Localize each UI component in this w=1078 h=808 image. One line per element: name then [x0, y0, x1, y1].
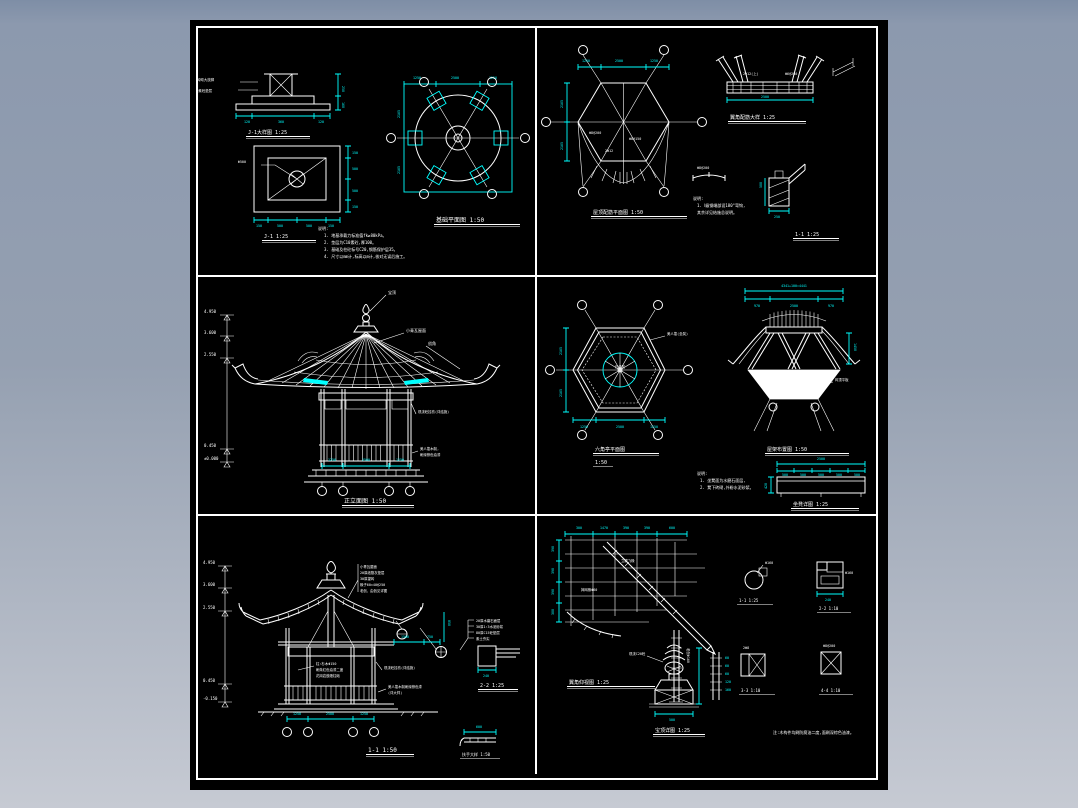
dim-label: 1250	[293, 712, 301, 716]
plan-roof-drawing: 石桌凳 美人靠(坐凳) 1250 2500 1250 2165 2165 六角亭…	[537, 277, 876, 514]
drawing-title: 宝顶详图 1:25	[655, 727, 690, 734]
note-line: 1. 坐凳面为水磨石面层,	[700, 477, 746, 483]
callout-label: 现浇砼挂枋(详结施)	[384, 665, 415, 670]
layer-label: 老戗、由戗见详图	[360, 588, 388, 593]
dim-label: 2500	[615, 59, 623, 63]
dim-label: 1470	[600, 526, 608, 530]
grid-axis-row: 1250 2500 1250	[318, 458, 415, 496]
dim-label: 60	[725, 656, 729, 660]
panel-details: 300 1470 390 390 600 390 390 390 300 摔网椽…	[537, 516, 876, 774]
drawing-title: 扶手大样 1:50	[462, 751, 491, 757]
drawing-title: 2-2 1:25	[480, 683, 504, 689]
section-1-1-detail: Φ160 1-1 1:25	[737, 561, 773, 605]
dim-label: 2500	[326, 712, 334, 716]
level-label: 0.450	[203, 678, 216, 683]
dim-label: 240	[483, 674, 489, 678]
dim-label: 500	[782, 473, 788, 477]
panel-roof-rebar: Φ8@200 Φ8@150 2Φ12 1250 2500 1250 2165 2…	[537, 28, 876, 277]
note-line: 1. Ⅰ级钢端部设180°弯钩,	[697, 202, 745, 208]
page-background: 砖砌大放脚 C10素砼垫层 250 160 120 360 120 J-1大样图…	[0, 0, 1078, 808]
drawing-title: J-1大样图 1:25	[248, 129, 287, 136]
drawing-title: 1-1 1:50	[368, 747, 397, 754]
corner-beam-detail: 2Φ12(上) Φ6@200 2500 翼角配筋大样 1:25	[716, 55, 855, 124]
section-detail-1-1: 250 500 1-1 1:25	[759, 164, 839, 241]
dim-label: 2500	[362, 458, 370, 462]
leader-labels: 柱:杉木Φ150 刷朱红色油漆二度 花岗岩鼓磴柱础 现浇砼挂枋(详结施) 美人靠…	[298, 661, 423, 695]
dim-label: 2Φ8	[743, 646, 749, 650]
general-note: 注:木构件均刷防腐油二度,面刷深棕色油漆。	[773, 729, 854, 735]
drawing-title: 坐凳详图 1:25	[793, 501, 828, 508]
notes-block: 说明: 1. 坐凳面为水磨石面层, 2. 凳下砖砌,外粉水泥砂浆。	[697, 470, 754, 490]
section-2-2-detail: Φ160 240 2-2 1:10	[817, 562, 853, 613]
dim-label: 970	[828, 304, 834, 308]
dim-label: 60	[725, 664, 729, 668]
dim-label: 500	[759, 182, 763, 188]
dim-label: 1250	[360, 712, 368, 716]
layer-label: 30厚1:3水泥砂浆	[476, 624, 504, 629]
layer-label: 小青瓦屋面	[360, 564, 378, 569]
note-line: 4. 尺寸以mm计,标高以m计,核对无误后施工。	[324, 253, 407, 259]
dim-label: 2500	[616, 425, 624, 429]
callout-label: 美人靠(坐凳)	[667, 331, 688, 336]
arc-bar-detail: Φ8@200	[693, 166, 725, 181]
sheet-frame: 砖砌大放脚 C10素砼垫层 250 160 120 360 120 J-1大样图…	[196, 26, 878, 780]
level-label: 2.550	[204, 352, 217, 357]
eave-corner-plan: 300 1470 390 390 600 390 390 390 300 摔网椽…	[551, 526, 715, 702]
level-label: 3.600	[203, 582, 216, 587]
rebar-label: 2Φ12(上)	[743, 71, 759, 76]
dim-label: Φ160	[845, 571, 853, 575]
drawing-title: 翼角仰视图 1:25	[569, 679, 609, 686]
dim-label: 850	[447, 620, 451, 626]
callout-label: 宝顶	[388, 289, 396, 295]
dim-label: Φ160	[765, 561, 773, 565]
callout-label: 柱:杉木Φ150	[316, 661, 336, 666]
dim-label: 120	[318, 120, 324, 124]
pavilion-body	[304, 389, 428, 482]
dim-label: 500	[352, 167, 358, 171]
dim-label: 150	[352, 151, 358, 155]
dim-label: 500	[836, 473, 842, 477]
drawing-title: 2-2 1:10	[819, 606, 839, 611]
dim-label: 500	[800, 473, 806, 477]
drawing-title: 屋顶配筋平面图 1:50	[593, 209, 643, 216]
section-4-4-detail: Φ8@200 4-4 1:10	[819, 644, 853, 695]
note-line: 2. 凳下砖砌,外粉水泥砂浆。	[700, 484, 754, 490]
dim-label: 120	[244, 120, 250, 124]
drawing-title: 六角亭平面图	[595, 446, 625, 453]
elevation-drawing: 1250 2500 1250 4.950 3.600 2.550 0.450 ±…	[198, 277, 535, 514]
drawing-scale: 1:50	[595, 460, 607, 466]
dim-label: 2165	[559, 347, 563, 355]
notes-heading: 说明:	[697, 470, 707, 476]
dim-label: 2165	[560, 142, 564, 150]
panel-section: 1250 2500 1250 4.950 3.600 2.550 0.450 -…	[198, 516, 537, 774]
panel-plan-roof: 石桌凳 美人靠(坐凳) 1250 2500 1250 2165 2165 六角亭…	[537, 277, 876, 516]
dim-label: 120	[725, 680, 731, 684]
drawing-title: 1-1 1:25	[739, 598, 759, 603]
section-drawing: 1250 2500 1250 4.950 3.600 2.550 0.450 -…	[198, 516, 535, 770]
notes-block: 说明: 1. Ⅰ级钢端部设180°弯钩, 其余详见结施总说明。	[693, 195, 745, 215]
layer-label: 30厚望砖	[360, 576, 375, 581]
callout-label: 现浇砼挂枋(详结施)	[418, 409, 449, 414]
callout-label: 刷深棕色油漆	[420, 452, 441, 457]
rebar-label: Φ6@200	[785, 72, 797, 76]
section-finial	[317, 562, 345, 589]
drawing-title: 基础平面图 1:50	[436, 216, 484, 224]
dim-label: 600	[476, 725, 482, 729]
drawing-title: 1-1 1:25	[795, 232, 819, 238]
dim-label: 300	[576, 526, 582, 530]
dim-label: 600	[669, 526, 675, 530]
callout-label: 立脚飞椽	[621, 558, 635, 563]
rebar-label: Φ8@150	[629, 137, 641, 141]
section-body	[258, 628, 438, 716]
rebar-label: Φ8@200	[589, 131, 601, 135]
leader-labels: 宝顶 小青瓦屋面 戗角 现浇砼挂枋(详结施) 美人靠木制, 刷深棕色油漆	[370, 289, 460, 457]
dim-label: 500	[352, 189, 358, 193]
roof-rebar-drawing: Φ8@200 Φ8@150 2Φ12 1250 2500 1250 2165 2…	[537, 28, 876, 275]
notes-heading: 说明:	[693, 195, 703, 201]
dim-label: 390	[644, 526, 650, 530]
dim-label: 4341+100=4441	[781, 284, 807, 288]
dim-label: 2165	[397, 110, 401, 118]
notes-block: 说明: 1. 地基承载力标准值fk≥80kPa。 2. 垫层为C10素砼,厚10…	[318, 225, 407, 259]
dim-label: 2500	[451, 76, 459, 80]
dim-label: 970	[754, 304, 760, 308]
dim-label: 1250	[580, 425, 588, 429]
dim-label: 300	[551, 609, 555, 615]
eave-accent	[404, 378, 429, 385]
pavilion-finial	[354, 305, 378, 333]
grid-axis-row: 1250 2500 1250	[283, 712, 379, 737]
ceiling-slab	[748, 370, 840, 399]
level-marks: 4.950 3.600 2.550 0.450 ±0.000	[204, 309, 234, 467]
footing-plan-detail: Φ500 150 500 500 150 150 500 500 150 J-1…	[238, 146, 358, 243]
dim-label: 500	[277, 224, 283, 228]
dim-label: 2165	[559, 389, 563, 397]
drawing-title: 屋架布置图 1:50	[767, 446, 807, 453]
details-drawing: 300 1470 390 390 600 390 390 390 300 摔网椽…	[537, 516, 876, 770]
dim-label: 250	[341, 86, 345, 92]
note-line: 3. 基础及柱砼标号C20,钢筋保护层35。	[324, 246, 398, 252]
layer-label: 素土夯实	[476, 636, 490, 641]
dim-label: 420	[764, 483, 768, 489]
layer-label: 80厚C15砼垫层	[476, 630, 500, 635]
level-label: -0.150	[203, 696, 218, 701]
level-marks: 4.950 3.600 2.550 0.450 -0.150	[203, 560, 232, 707]
dim-label: 500	[854, 473, 860, 477]
layer-label: 椽子60×40@250	[360, 582, 385, 587]
section-roof	[239, 590, 423, 656]
callout-label: 戗角	[428, 340, 436, 346]
layer-label: 20厚纸筋灰垫层	[360, 570, 385, 575]
dim-label: 1250	[396, 458, 404, 462]
roof-framing-elevation: 4341+100=4441 970 2500 970 闷顶平板 1450 屋架布…	[728, 284, 860, 456]
callout-label: (详大样)	[388, 690, 402, 695]
notes-heading: 说明:	[318, 225, 328, 231]
foundation-drawing: 砖砌大放脚 C10素砼垫层 250 160 120 360 120 J-1大样图…	[198, 28, 535, 275]
dim-label: 2500	[817, 457, 825, 461]
dim-label: 150	[352, 205, 358, 209]
dim-label: 390	[551, 568, 555, 574]
dim-label: Φ8@200	[823, 644, 835, 648]
callout-label: 刷朱红色油漆二度	[316, 667, 344, 672]
cad-sheet: 砖砌大放脚 C10素砼垫层 250 160 120 360 120 J-1大样图…	[190, 20, 888, 790]
drawing-title: 3-3 1:10	[741, 688, 761, 693]
hexagonal-plan: 石桌凳 美人靠(坐凳) 1250 2500 1250 2165 2165 六角亭…	[546, 301, 693, 467]
dim-label: 500	[818, 473, 824, 477]
dim-label: 390	[623, 526, 629, 530]
dim-label: 750	[427, 635, 433, 639]
dim-label: 160	[725, 688, 731, 692]
dim-label: 390	[551, 546, 555, 552]
drawing-title: 翼角配筋大样 1:25	[730, 114, 775, 121]
dim-label: 1250	[650, 59, 658, 63]
footing-label: 砖砌大放脚	[198, 77, 215, 82]
dim-label: 360	[278, 120, 284, 124]
dim-ladder: 60 60 60 120 160	[710, 652, 731, 700]
note-line: 2. 垫层为C10素砼,厚100。	[324, 239, 376, 245]
dim-label: 1250	[582, 59, 590, 63]
callout-label: 现浇C20砼	[629, 651, 646, 656]
level-label: 4.950	[203, 560, 216, 565]
panel-elevation: 1250 2500 1250 4.950 3.600 2.550 0.450 ±…	[198, 277, 537, 516]
panel-foundation: 砖砌大放脚 C10素砼垫层 250 160 120 360 120 J-1大样图…	[198, 28, 537, 277]
dim-label: 500	[306, 224, 312, 228]
level-label: 3.600	[204, 330, 217, 335]
finial-detail: 现浇C20砼 500 宝顶详图 1:25	[629, 645, 705, 737]
note-line: 1. 地基承载力标准值fk≥80kPa。	[324, 232, 387, 238]
level-label: 4.950	[204, 309, 217, 314]
level-label: 2.550	[203, 605, 216, 610]
dim-label: 250	[774, 215, 780, 219]
detail-2-2: 20厚水磨石面层 30厚1:3水泥砂浆 80厚C15砼垫层 素土夯实 240 2…	[460, 618, 520, 692]
dim-label: 1500	[401, 635, 409, 639]
callout-label: 美人靠木制,	[420, 446, 439, 451]
callout-label: 小青瓦屋面	[406, 327, 426, 333]
layer-label: 20厚水磨石面层	[476, 618, 501, 623]
eave-accent	[303, 378, 328, 385]
roof-rebar-plan: Φ8@200 Φ8@150 2Φ12 1250 2500 1250 2165 2…	[542, 46, 707, 219]
roof-layer-callout: 小青瓦屋面 20厚纸筋灰垫层 30厚望砖 椽子60×40@250 老戗、由戗见详…	[348, 564, 388, 598]
dim-label: 2165	[560, 100, 564, 108]
drawing-title: 正立面图 1:50	[344, 497, 386, 505]
footing-label: C10素砼垫层	[198, 88, 213, 93]
dim-label: 2165	[397, 166, 401, 174]
footing-section-detail: 砖砌大放脚 C10素砼垫层 250 160 120 360 120 J-1大样图…	[198, 74, 345, 139]
dim-label: 390	[551, 589, 555, 595]
detail-callouts: 1500 750 850	[394, 612, 451, 658]
dim-label: 1250	[650, 425, 658, 429]
drawing-title: 4-4 1:10	[821, 688, 841, 693]
dim-label: 60	[725, 672, 729, 676]
dim-label: 1450	[853, 343, 857, 351]
dim-label: 240	[825, 598, 831, 602]
drawing-title: J-1 1:25	[264, 234, 288, 240]
pile-label: Φ500	[238, 160, 246, 164]
callout-label: 老戗Φ160	[686, 648, 691, 663]
rebar-label: Φ8@200	[697, 166, 709, 170]
dim-label: 160	[341, 102, 345, 108]
callout-label: 摔网椽Φ60	[581, 587, 597, 592]
note-line: 其余详见结施总说明。	[697, 209, 737, 215]
dim-label: 1250	[328, 458, 336, 462]
foundation-plan: 1250 2500 1250 2165 2165 基础平面图 1:50	[387, 76, 530, 227]
bench-detail: 2500 500 500 500 500 500 420 坐凳详图 1:25	[764, 457, 865, 511]
callout-label: 花岗岩鼓磴柱础	[316, 673, 340, 678]
dim-label: 150	[328, 224, 334, 228]
level-label: 0.450	[204, 443, 217, 448]
center-label: 石桌凳	[615, 364, 626, 369]
dim-label: 2500	[761, 95, 769, 99]
callout-label: 美人靠木制刷深棕色漆	[388, 684, 423, 689]
dim-label: 500	[669, 718, 675, 722]
rebar-label: 2Φ12	[605, 149, 613, 153]
dim-label: 150	[256, 224, 262, 228]
handrail-mini-detail: 600 扶手大样 1:50	[460, 725, 500, 759]
callout-label: 闷顶平板	[835, 377, 849, 382]
dim-label: 2500	[790, 304, 798, 308]
pavilion-roof	[232, 332, 500, 389]
section-3-3-detail: 2Φ8 3-3 1:10	[739, 646, 775, 695]
level-label: ±0.000	[204, 456, 219, 461]
